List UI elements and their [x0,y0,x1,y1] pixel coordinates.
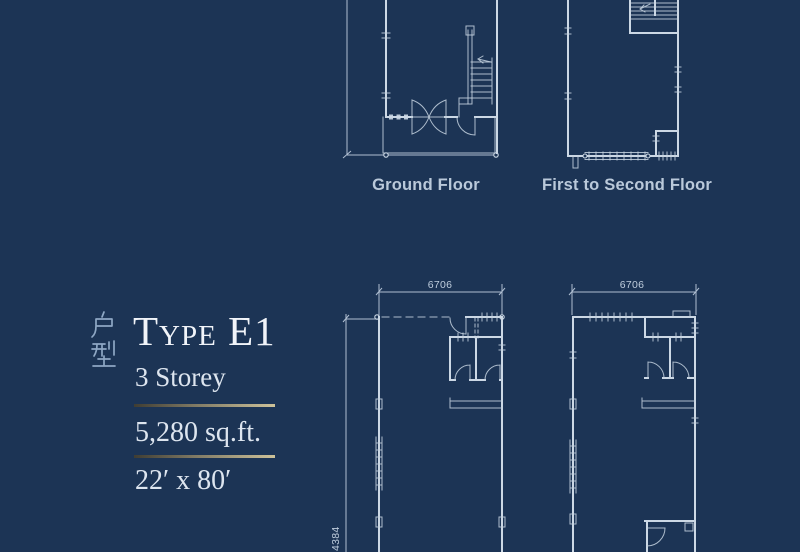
upper-floor-label: First to Second Floor [537,176,717,195]
lower-left-plan: 6706 4384 [322,268,522,552]
staircase [459,26,492,117]
unit-storey: 3 Storey [135,364,226,391]
unit-area: 5,280 sq.ft. [135,419,261,447]
lower-right-plan: 6706 [552,268,720,552]
dimension-depth-value: 4384 [330,526,342,551]
dimension-width: 6706 [376,279,505,316]
bathrooms [450,333,502,380]
ground-floor-plan [335,0,510,168]
swing-door [457,117,475,135]
dimension-depth: 4384 [330,314,376,552]
bottom-room [645,521,695,552]
unit-size: 22′ x 80′ [135,467,231,495]
bathrooms [645,317,695,378]
upper-floor-plan [545,0,695,170]
floorplan-page: Ground Floor First to Second Floor [0,0,800,552]
unit-title: Type E1 [133,311,276,352]
dimension-width: 6706 [569,279,699,315]
separator-line [134,455,275,458]
dimension-width-value: 6706 [428,279,453,291]
staircase [630,0,678,33]
dimension-width-value: 6706 [620,279,645,291]
unit-type-cjk [91,311,117,369]
swing-door [647,528,665,546]
swing-door [450,318,466,334]
ground-floor-label: Ground Floor [346,176,506,195]
separator-line [134,404,275,407]
